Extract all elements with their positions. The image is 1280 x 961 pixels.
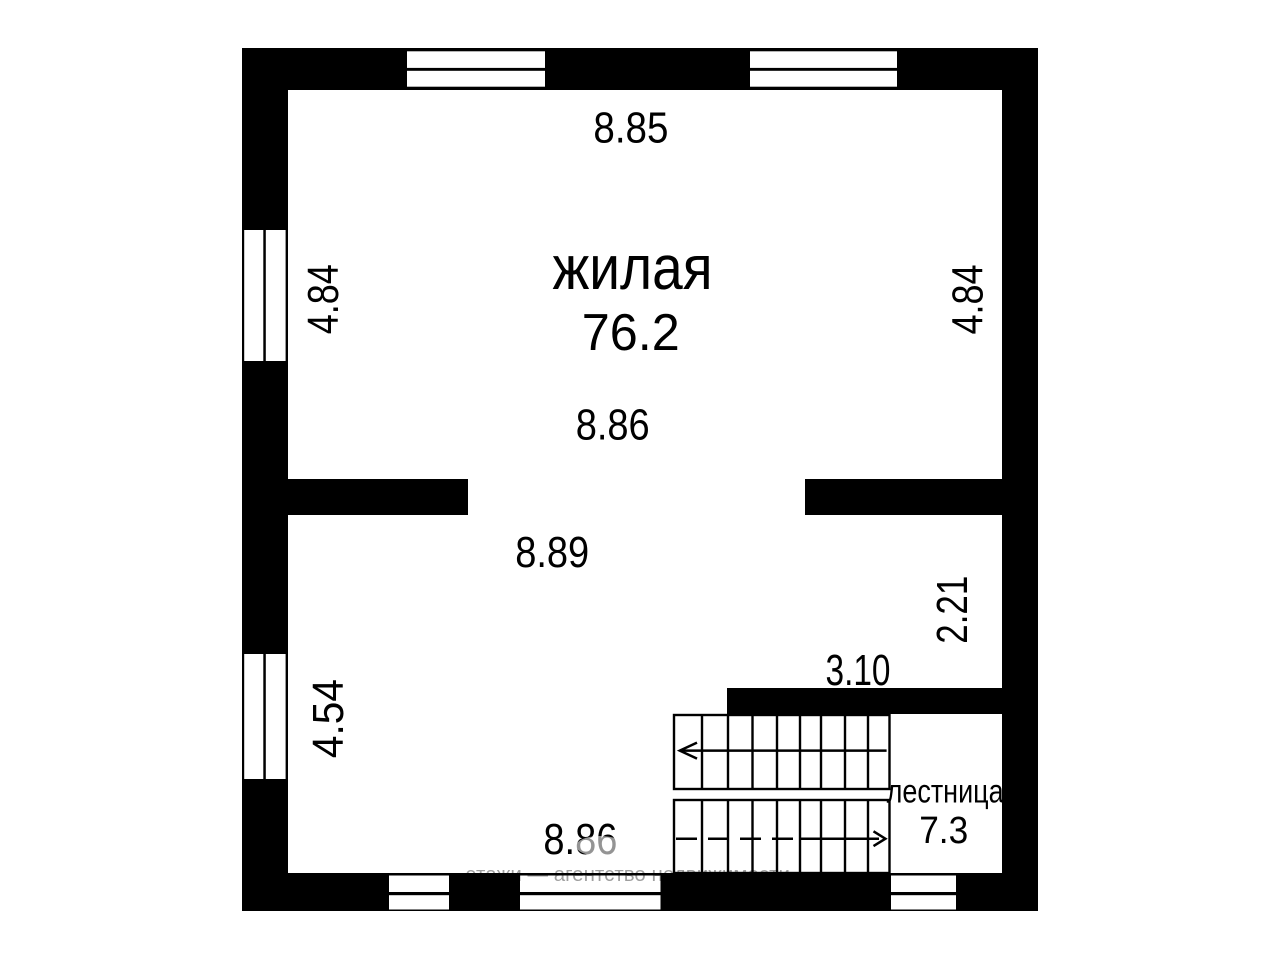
svg-text:этажи — агентство недвижимости: этажи — агентство недвижимости <box>466 864 790 886</box>
svg-text:жилая: жилая <box>553 234 713 303</box>
svg-text:4.84: 4.84 <box>299 264 348 334</box>
svg-text:8.85: 8.85 <box>593 104 668 153</box>
svg-text:8.86: 8.86 <box>576 401 650 450</box>
svg-text:3.10: 3.10 <box>826 646 891 695</box>
svg-text:8.89: 8.89 <box>515 528 589 577</box>
svg-text:4.84: 4.84 <box>943 265 992 335</box>
svg-text:76.2: 76.2 <box>582 304 680 362</box>
svg-text:4.54: 4.54 <box>304 679 353 758</box>
svg-text:2.21: 2.21 <box>928 576 977 644</box>
svg-text:7.3: 7.3 <box>919 810 968 852</box>
svg-text:лестница: лестница <box>887 773 1005 810</box>
